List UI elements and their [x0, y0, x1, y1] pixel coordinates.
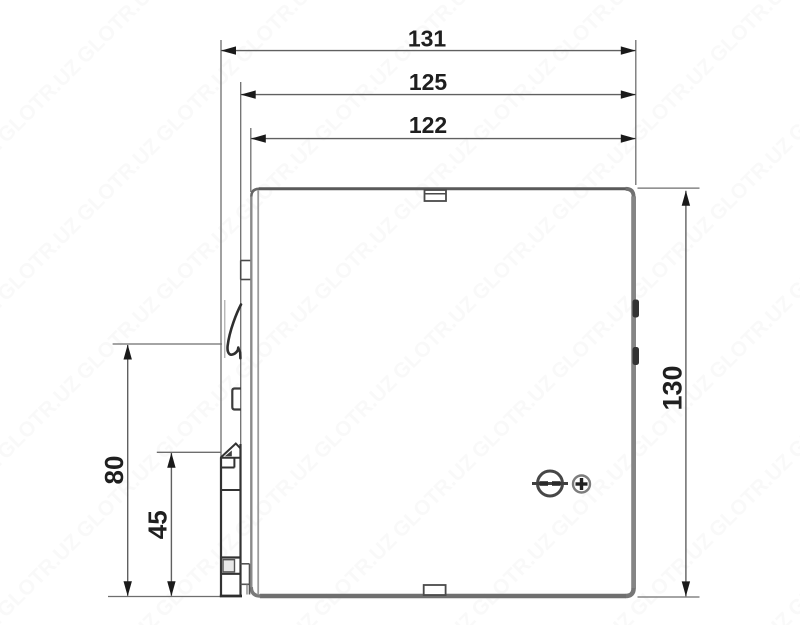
svg-text:GLOTR.UZ: GLOTR.UZ: [705, 608, 797, 625]
svg-text:GLOTR.UZ: GLOTR.UZ: [547, 0, 639, 68]
svg-text:45: 45: [143, 510, 173, 539]
svg-text:130: 130: [658, 365, 688, 410]
svg-text:125: 125: [409, 69, 448, 95]
svg-text:GLOTR.UZ: GLOTR.UZ: [0, 372, 85, 464]
svg-text:GLOTR.UZ: GLOTR.UZ: [0, 134, 6, 226]
svg-text:GLOTR.UZ: GLOTR.UZ: [626, 529, 718, 621]
svg-text:GLOTR.UZ: GLOTR.UZ: [0, 55, 86, 147]
svg-text:GLOTR.UZ: GLOTR.UZ: [309, 371, 401, 463]
svg-text:GLOTR.UZ: GLOTR.UZ: [0, 293, 6, 385]
svg-text:GLOTR.UZ: GLOTR.UZ: [546, 608, 638, 625]
svg-text:GLOTR.UZ: GLOTR.UZ: [784, 54, 800, 146]
svg-text:GLOTR.UZ: GLOTR.UZ: [230, 292, 322, 384]
svg-text:GLOTR.UZ: GLOTR.UZ: [310, 55, 402, 147]
svg-text:GLOTR.UZ: GLOTR.UZ: [705, 0, 797, 67]
svg-text:GLOTR.UZ: GLOTR.UZ: [230, 450, 322, 542]
svg-text:GLOTR.UZ: GLOTR.UZ: [309, 529, 401, 621]
svg-text:GLOTR.UZ: GLOTR.UZ: [310, 213, 402, 305]
svg-text:GLOTR.UZ: GLOTR.UZ: [0, 451, 6, 543]
svg-text:GLOTR.UZ: GLOTR.UZ: [72, 292, 164, 384]
svg-text:122: 122: [409, 112, 447, 138]
svg-text:GLOTR.UZ: GLOTR.UZ: [152, 55, 244, 147]
svg-text:GLOTR.UZ: GLOTR.UZ: [547, 292, 639, 384]
svg-text:GLOTR.UZ: GLOTR.UZ: [0, 530, 85, 622]
svg-text:GLOTR.UZ: GLOTR.UZ: [784, 371, 800, 463]
svg-text:GLOTR.UZ: GLOTR.UZ: [0, 213, 85, 305]
svg-text:GLOTR.UZ: GLOTR.UZ: [151, 213, 243, 305]
svg-text:GLOTR.UZ: GLOTR.UZ: [784, 529, 800, 621]
svg-text:GLOTR.UZ: GLOTR.UZ: [467, 529, 559, 621]
svg-text:GLOTR.UZ: GLOTR.UZ: [231, 134, 323, 226]
svg-text:GLOTR.UZ: GLOTR.UZ: [626, 213, 718, 305]
svg-text:GLOTR.UZ: GLOTR.UZ: [547, 134, 639, 226]
svg-text:GLOTR.UZ: GLOTR.UZ: [468, 55, 560, 147]
svg-text:GLOTR.UZ: GLOTR.UZ: [705, 292, 797, 384]
svg-text:GLOTR.UZ: GLOTR.UZ: [73, 0, 165, 68]
svg-text:131: 131: [408, 26, 447, 52]
svg-text:GLOTR.UZ: GLOTR.UZ: [468, 371, 560, 463]
svg-text:GLOTR.UZ: GLOTR.UZ: [468, 213, 560, 305]
svg-text:GLOTR.UZ: GLOTR.UZ: [784, 212, 800, 304]
svg-text:GLOTR.UZ: GLOTR.UZ: [231, 0, 323, 68]
svg-text:GLOTR.UZ: GLOTR.UZ: [389, 134, 481, 226]
svg-text:GLOTR.UZ: GLOTR.UZ: [389, 292, 481, 384]
svg-text:GLOTR.UZ: GLOTR.UZ: [151, 530, 243, 622]
svg-text:GLOTR.UZ: GLOTR.UZ: [388, 450, 480, 542]
svg-text:GLOTR.UZ: GLOTR.UZ: [705, 450, 797, 542]
svg-text:GLOTR.UZ: GLOTR.UZ: [626, 54, 718, 146]
svg-text:GLOTR.UZ: GLOTR.UZ: [547, 450, 639, 542]
svg-text:GLOTR.UZ: GLOTR.UZ: [72, 609, 164, 625]
svg-text:GLOTR.UZ: GLOTR.UZ: [72, 134, 164, 226]
svg-text:GLOTR.UZ: GLOTR.UZ: [388, 608, 480, 625]
svg-text:80: 80: [99, 456, 129, 485]
svg-text:GLOTR.UZ: GLOTR.UZ: [705, 133, 797, 225]
svg-text:GLOTR.UZ: GLOTR.UZ: [230, 609, 322, 625]
